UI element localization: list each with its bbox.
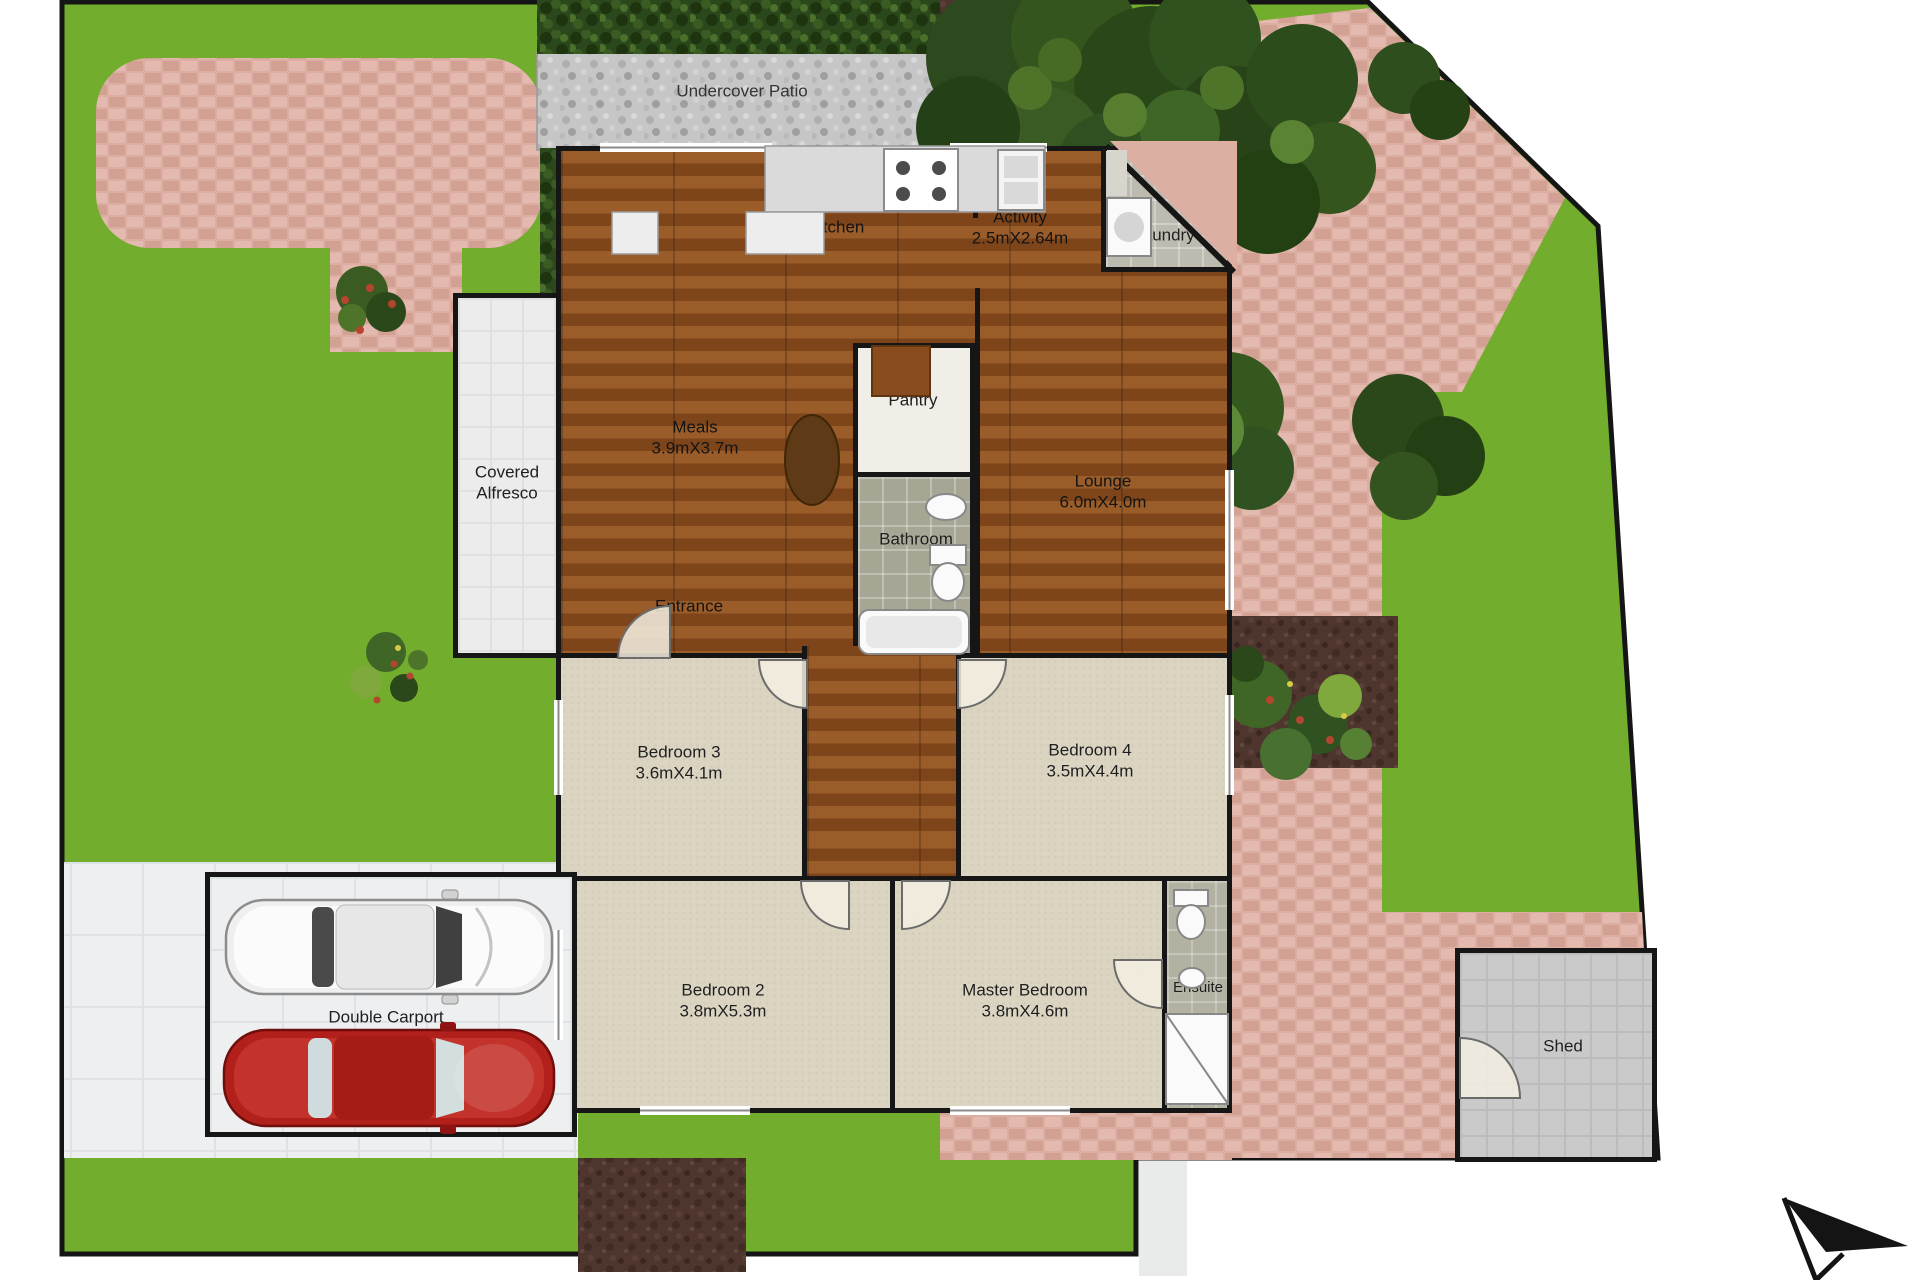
label-bedroom3: Bedroom 3 3.6mX4.1m bbox=[636, 742, 723, 783]
label-shed: Shed bbox=[1543, 1037, 1583, 1058]
label-bathroom: Bathroom bbox=[879, 530, 953, 551]
label-double-carport: Double Carport bbox=[328, 1008, 443, 1029]
garden-bed-bottom bbox=[578, 1158, 746, 1272]
label-ensuite: Ensuite bbox=[1173, 979, 1223, 997]
label-laundry: Laundry bbox=[1133, 226, 1194, 247]
label-bedroom4: Bedroom 4 3.5mX4.4m bbox=[1047, 740, 1134, 781]
carport bbox=[205, 872, 577, 1137]
label-meals: Meals 3.9mX3.7m bbox=[652, 417, 739, 458]
hedge-top bbox=[537, 0, 942, 54]
label-kitchen: Kitchen bbox=[808, 218, 865, 239]
label-covered-alfresco: Covered Alfresco bbox=[459, 462, 555, 503]
label-master-bedroom: Master Bedroom 3.8mX4.6m bbox=[962, 980, 1088, 1021]
label-lounge: Lounge 6.0mX4.0m bbox=[1060, 471, 1147, 512]
path-strip-bottom bbox=[1139, 1161, 1187, 1276]
label-entrance: Entrance bbox=[655, 597, 723, 618]
label-activity: Activity 2.5mX2.64m bbox=[972, 207, 1068, 248]
label-undercover-patio: Undercover Patio bbox=[667, 82, 817, 103]
wall-lounge-left bbox=[975, 288, 980, 658]
label-bedroom2: Bedroom 2 3.8mX5.3m bbox=[680, 980, 767, 1021]
room-laundry bbox=[1101, 146, 1232, 272]
room-bathroom bbox=[853, 472, 975, 658]
hallway-floor bbox=[802, 646, 961, 881]
label-pantry: Pantry bbox=[888, 391, 937, 412]
site-plan: Undercover Patio Kitchen Activity 2.5mX2… bbox=[0, 0, 1920, 1280]
